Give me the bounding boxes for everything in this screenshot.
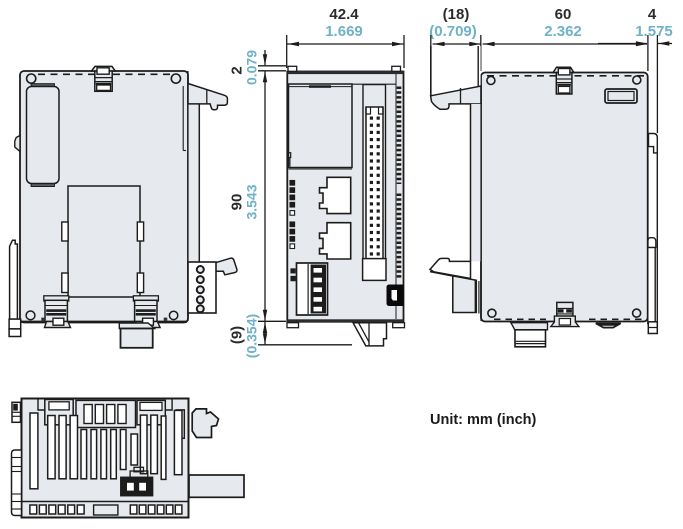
svg-text:1.575: 1.575 <box>635 23 673 40</box>
svg-text:2.362: 2.362 <box>544 23 582 40</box>
svg-text:4: 4 <box>648 6 657 23</box>
svg-text:Unit: mm (inch): Unit: mm (inch) <box>430 412 536 428</box>
svg-text:42.4: 42.4 <box>329 6 359 23</box>
svg-text:1.669: 1.669 <box>325 23 363 40</box>
svg-text:(0.709): (0.709) <box>429 23 477 40</box>
svg-text:(18): (18) <box>443 6 470 23</box>
svg-text:3.543: 3.543 <box>244 184 260 219</box>
svg-text:(0.354): (0.354) <box>244 314 260 358</box>
svg-text:0.079: 0.079 <box>244 50 260 85</box>
svg-text:60: 60 <box>555 6 572 23</box>
